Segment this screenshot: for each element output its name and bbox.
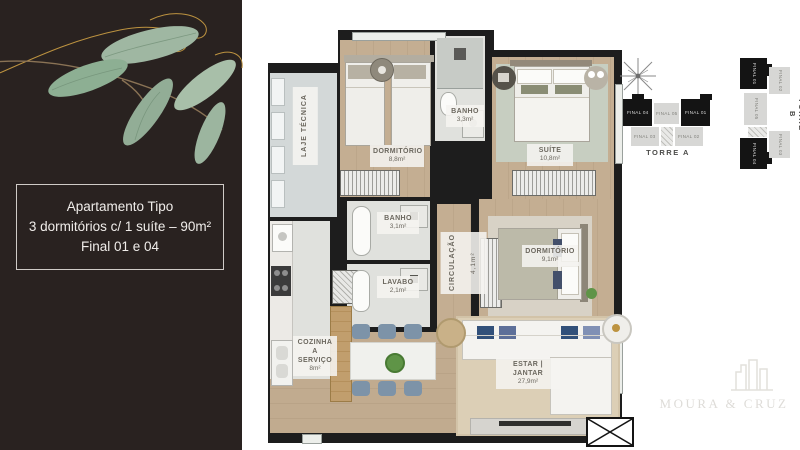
torre-b-unit-final-04: FINAL 04 — [740, 138, 767, 169]
plant — [586, 288, 597, 299]
dining-chair — [378, 381, 396, 396]
laje-panel — [271, 146, 285, 174]
left-panel: Apartamento Tipo 3 dormitórios c/ 1 suít… — [0, 0, 242, 450]
torre-b-unit-final-05: FINAL 05 — [744, 93, 767, 125]
suite-side-table — [584, 66, 608, 90]
sofa — [462, 320, 612, 360]
wardrobe — [512, 170, 596, 196]
plan-outline-notch — [268, 30, 338, 63]
dining-chair — [352, 324, 370, 339]
room-label-laje-tecnica: LAJE TÉCNICA — [293, 87, 318, 165]
room-label-dormitorio-1: DORMITÓRIO 8,8m² — [370, 145, 424, 167]
laje-panel — [271, 78, 285, 106]
window-dormitorio-1 — [352, 32, 446, 41]
room-label-cozinha: COZINHA A SERVIÇO 8m² — [293, 336, 337, 376]
side-table-round — [436, 318, 466, 348]
room-label-dormitorio-2: DORMITÓRIO 9,1m² — [522, 245, 578, 267]
moura-cruz-logo — [728, 356, 776, 394]
room-label-suite: SUÍTE 10,8m² — [527, 144, 573, 166]
room-label-banho-2: BANHO 3,1m² — [377, 212, 419, 234]
apartment-description: 3 dormitórios c/ 1 suíte – 90m² — [17, 217, 223, 237]
torre-b-label: TORRE B — [788, 98, 800, 132]
washer — [272, 224, 293, 252]
nightstand — [370, 58, 394, 82]
single-bed — [391, 62, 431, 146]
room-label-circulacao: CIRCULAÇÃO 4,1m² — [441, 232, 487, 294]
torre-a-unit-final-03: FINAL 03 — [631, 127, 659, 146]
bathtub — [352, 206, 371, 256]
double-bed — [514, 66, 590, 142]
torre-a-unit-final-01: FINAL 01 — [681, 99, 710, 126]
compass-icon — [618, 56, 658, 96]
torre-a-unit-final-04: FINAL 04 — [623, 99, 652, 126]
shower — [437, 38, 483, 89]
dining-chair — [404, 324, 422, 339]
apartment-final-units: Final 01 e 04 — [17, 237, 223, 257]
room-label-estar-jantar: ESTAR | JANTAR 27,9m² — [496, 358, 560, 389]
kitchen-sink — [271, 340, 293, 386]
room-label-banho-1: BANHO 3,3m² — [446, 105, 484, 127]
door-threshold — [302, 434, 322, 444]
room-label-lavabo: LAVABO 2,1m² — [377, 276, 419, 298]
torre-a-unit-final-02: FINAL 02 — [675, 127, 703, 146]
shaft-x-box — [586, 417, 634, 447]
suite-side-table — [492, 66, 516, 90]
torre-a-unit-final-05: FINAL 05 — [654, 103, 679, 124]
torre-b-unit-final-02: FINAL 02 — [769, 67, 790, 94]
stove — [271, 266, 291, 296]
laje-panel — [271, 180, 285, 208]
tv-console — [470, 418, 602, 435]
window-suite — [615, 84, 623, 164]
lavabo-basin — [352, 270, 370, 312]
apartment-type-title: Apartamento Tipo — [17, 197, 223, 217]
dining-chair — [378, 324, 396, 339]
floorplan-page: Apartamento Tipo 3 dormitórios c/ 1 suít… — [0, 0, 800, 450]
side-table-round — [602, 314, 632, 344]
laje-panel — [271, 112, 285, 140]
wardrobe — [340, 170, 400, 196]
watermark-text: MOURA & CRUZ — [648, 396, 800, 412]
apartment-info-box: Apartamento Tipo 3 dormitórios c/ 1 suít… — [16, 184, 224, 270]
plan-outline-notch — [494, 30, 622, 50]
torre-b-unit-final-03: FINAL 03 — [769, 131, 790, 158]
eucalyptus-branch-illustration — [0, 0, 250, 168]
torre-a-label: TORRE A — [623, 148, 713, 157]
torre-b-unit-final-01: FINAL 01 — [740, 58, 767, 89]
dining-chair — [352, 381, 370, 396]
dining-chair — [404, 381, 422, 396]
dining-table — [350, 342, 436, 380]
